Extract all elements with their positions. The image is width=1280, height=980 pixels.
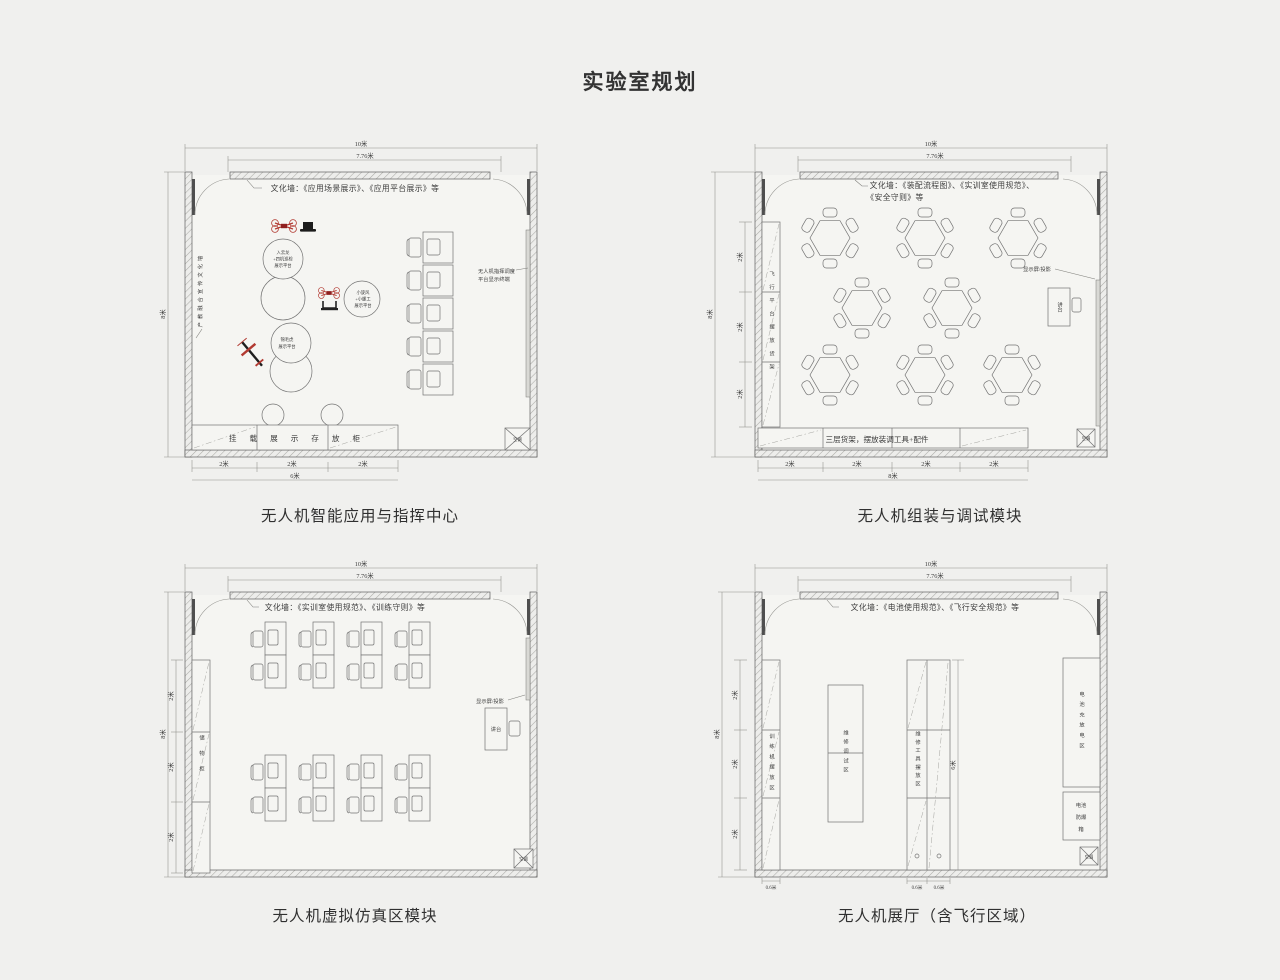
dim-label: 7.76米 (926, 151, 944, 160)
dim-label: 2米 (735, 252, 744, 262)
storage-cabinet: 储物柜 (192, 660, 210, 873)
plan3-caption: 无人机虚拟仿真区模块 (155, 904, 555, 926)
svg-text:箱: 箱 (1078, 825, 1084, 833)
terminal-label: 平台显示终端 (478, 275, 510, 283)
svg-text:+小螺工: +小螺工 (355, 296, 371, 303)
cabinet-label: 挂载展示存放柜 (229, 433, 373, 443)
dim-label: 2米 (735, 322, 744, 332)
screen-label: 显示屏/投影 (476, 697, 505, 705)
page-title: 实验室规划 (0, 66, 1280, 96)
zone-label: 电池充放电区 (1078, 690, 1085, 753)
plan-assembly-module: 10米 7.76米 8米 2米 2米 2米 2米 2米 2米 2米 8米 文化墙… (700, 128, 1120, 496)
dim-label: 2米 (287, 459, 297, 468)
plan-simulation-module: 10米 7.76米 8米 2米 2米 2米 文化墙：《实训室使用规范》、《训练守… (152, 553, 556, 898)
dim-label: 2米 (166, 762, 175, 772)
dim-label: 8米 (712, 729, 721, 739)
dim-label: 2米 (730, 829, 739, 839)
dim-label: 7.76米 (926, 571, 944, 580)
dim-label: 2米 (852, 459, 862, 468)
dim-label: 0.6米 (912, 884, 923, 891)
dim-label: 7.76米 (356, 151, 374, 160)
podium-chair (509, 721, 520, 736)
svg-text:展示平台: 展示平台 (274, 262, 291, 269)
podium-label: 讲台 (1056, 300, 1063, 313)
plan2-caption: 无人机组装与调试模块 (740, 504, 1140, 526)
wall-display-screen (526, 230, 530, 397)
ac-unit: 空调 (505, 428, 530, 450)
training-drone-rack: 训练机摆放区 (762, 660, 780, 870)
plan-exhibition-hall: 10米 7.76米 8米 2米 2米 2米 6米 0.6米 0.6米 0.6米 … (700, 553, 1130, 898)
dim-label: 2米 (166, 691, 175, 701)
wall-display-screen (1096, 280, 1100, 426)
dim-label: 2米 (989, 459, 999, 468)
dim-label: 2米 (166, 832, 175, 842)
svg-text:+四机巡检: +四机巡检 (273, 256, 293, 263)
svg-text:空调: 空调 (513, 436, 522, 443)
wall-culture-text: 文化墙：《应用场景展示》、《应用平台展示》等 (271, 183, 440, 193)
dim-label: 2米 (735, 389, 744, 399)
dim-label: 8米 (888, 471, 898, 480)
svg-text:展示平台: 展示平台 (354, 302, 371, 309)
svg-text:空调: 空调 (1085, 854, 1094, 861)
dim-label: 10米 (355, 559, 368, 568)
dim-label: 7.76米 (356, 571, 374, 580)
repair-debug-zone: 维修调试区 (828, 685, 863, 822)
cabinet-label: 储物柜 (198, 734, 205, 781)
dim-label: 0.6米 (934, 884, 945, 891)
svg-text:电池: 电池 (1076, 801, 1087, 809)
dim-label: 6米 (290, 471, 300, 480)
rack-label: 训练机摆放区 (768, 732, 775, 795)
svg-text:锦毛虎: 锦毛虎 (281, 336, 295, 343)
rack-label: 飞行平台摆放货架 (768, 270, 775, 377)
dim-label: 2米 (730, 759, 739, 769)
dim-label: 8米 (705, 309, 714, 319)
tool-shelf: 三层货架，摆放装调工具+配件 (758, 428, 1028, 448)
dim-label: 2米 (730, 690, 739, 700)
svg-text:小旋风: 小旋风 (357, 289, 371, 296)
wall-culture-text: 文化墙：《电池使用规范》、《飞行安全规范》等 (851, 602, 1020, 612)
zone-label: 维修调试区 (842, 728, 849, 776)
left-wall-label: 产教融合宣传文化墙 (196, 253, 204, 328)
podium-chair (1072, 298, 1081, 312)
battery-safe-box: 电池 防爆 箱 (1063, 792, 1100, 840)
dim-label: 2米 (219, 459, 229, 468)
plan-command-center: 10米 7.76米 8米 2米 2米 2米 6米 文化墙：《应用场景展示》、《应… (158, 128, 562, 496)
wall-display-screen (526, 638, 530, 700)
storage-cabinet: 挂载展示存放柜 (192, 425, 398, 450)
repair-tool-rack: 维修工具摆放区 (907, 660, 950, 870)
dim-label: 0.6米 (766, 884, 777, 891)
workstation-row (407, 232, 453, 395)
dim-label: 10米 (355, 139, 368, 148)
dim-label: 2米 (358, 459, 368, 468)
svg-text:空调: 空调 (1082, 435, 1091, 442)
battery-charge-zone: 电池充放电区 (1063, 658, 1100, 787)
dim-label: 8米 (158, 729, 167, 739)
ac-unit: 空调 (1077, 429, 1095, 447)
dim-label: 8米 (158, 309, 167, 319)
plan1-caption: 无人机智能应用与指挥中心 (160, 504, 560, 526)
dim-label: 10米 (925, 139, 938, 148)
ac-unit: 空调 (514, 849, 533, 868)
wall-culture-text: 文化墙：《装配流程图》、《实训室使用规范》、 (870, 180, 1035, 190)
wall-culture-text: 《安全守则》等 (866, 192, 923, 202)
flight-platform-rack: 飞行平台摆放货架 (762, 222, 780, 427)
terminal-label: 无人机指挥调度 (478, 267, 516, 275)
svg-text:展示平台: 展示平台 (278, 343, 295, 350)
podium-label: 讲台 (491, 725, 502, 733)
rack-label: 维修工具摆放区 (914, 730, 921, 789)
shelf-label: 三层货架，摆放装调工具+配件 (826, 434, 929, 444)
ac-unit: 空调 (1080, 847, 1098, 865)
svg-text:入云龙: 入云龙 (277, 249, 291, 256)
plan4-caption: 无人机展厅（含飞行区域） (737, 904, 1137, 926)
svg-text:防爆: 防爆 (1076, 813, 1087, 821)
dim-label: 10米 (925, 559, 938, 568)
dim-label: 2米 (921, 459, 931, 468)
wall-culture-text: 文化墙：《实训室使用规范》、《训练守则》等 (265, 602, 425, 612)
dim-label: 2米 (785, 459, 795, 468)
screen-label: 显示屏/投影 (1023, 265, 1052, 273)
svg-text:空调: 空调 (519, 856, 528, 863)
